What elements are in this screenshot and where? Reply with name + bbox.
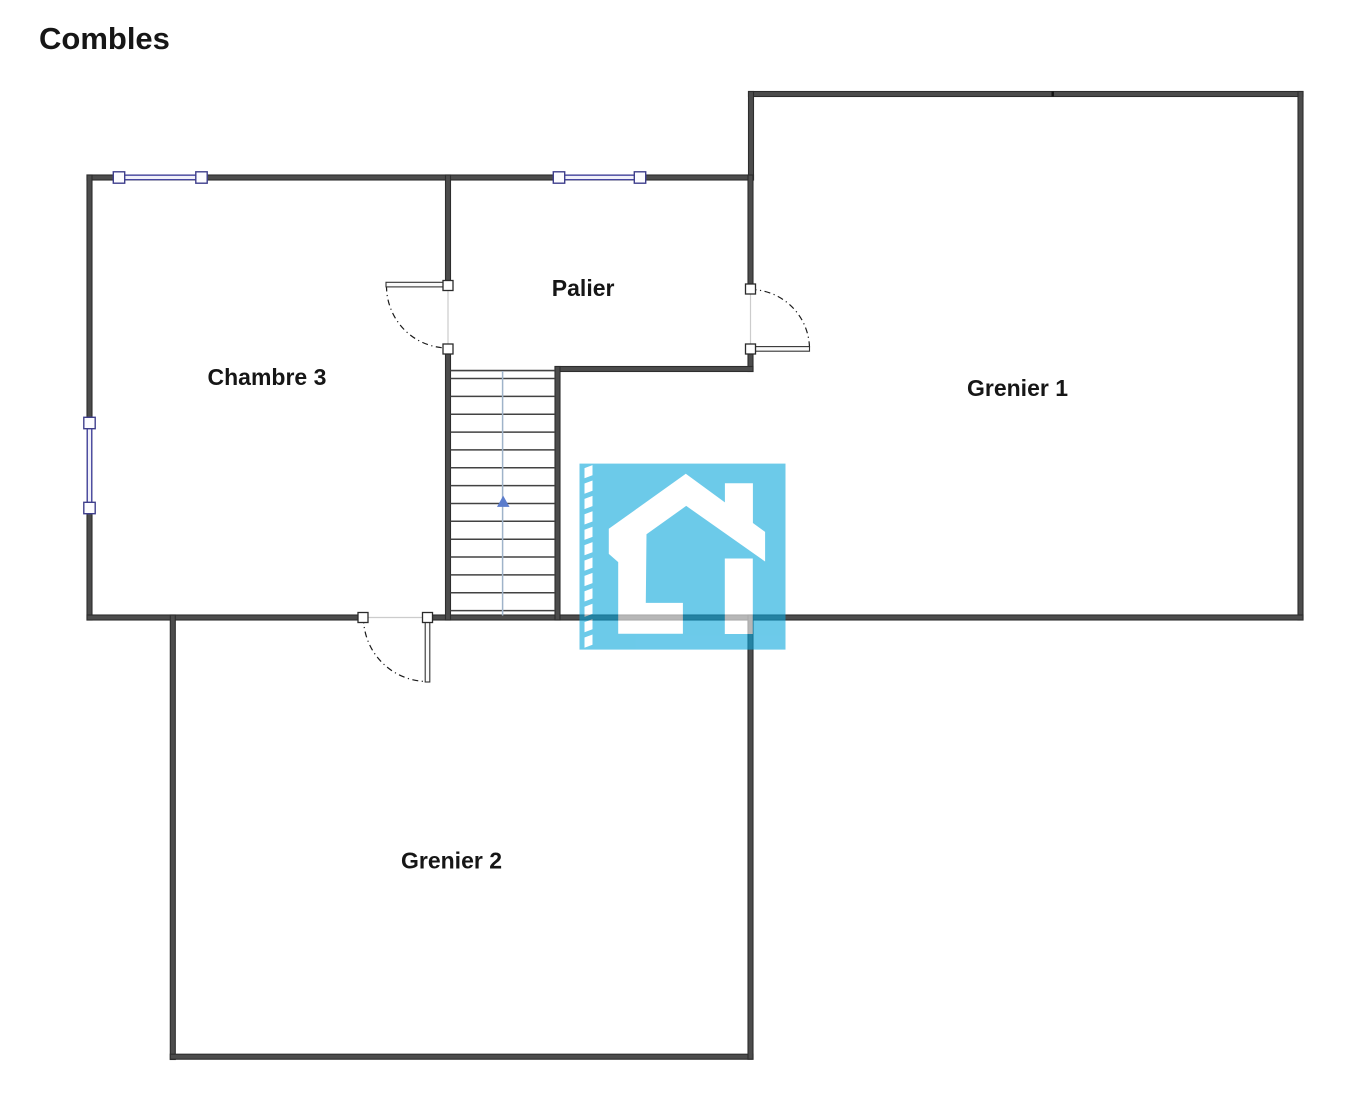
svg-text:Grenier 2: Grenier 2: [401, 848, 502, 874]
svg-text:Chambre 3: Chambre 3: [208, 364, 327, 390]
svg-text:Palier: Palier: [552, 275, 615, 301]
svg-text:Combles: Combles: [39, 21, 170, 56]
svg-text:Grenier 1: Grenier 1: [967, 375, 1068, 401]
